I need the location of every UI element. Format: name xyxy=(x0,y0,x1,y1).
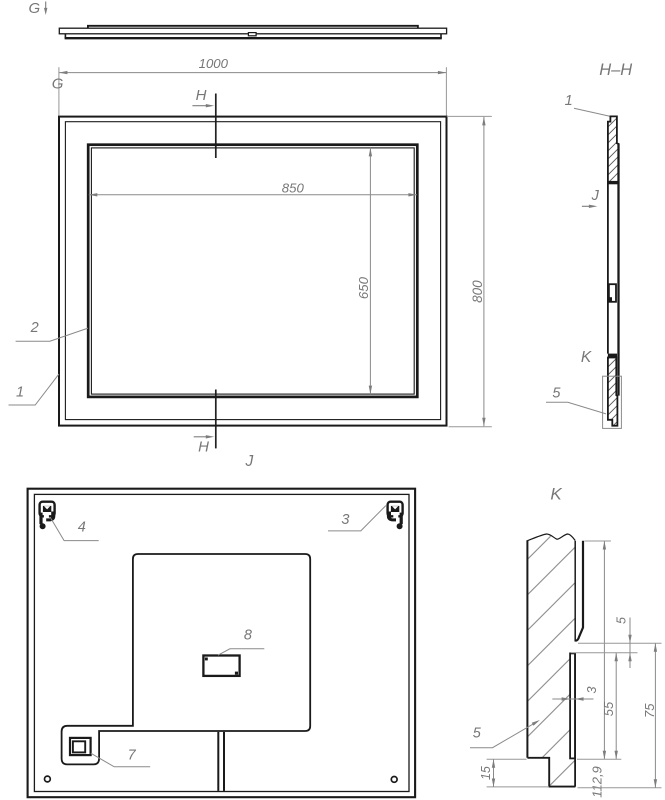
svg-text:5: 5 xyxy=(615,617,629,624)
svg-text:H–H: H–H xyxy=(599,61,632,79)
svg-text:112,9: 112,9 xyxy=(590,766,605,798)
svg-text:H: H xyxy=(198,439,209,456)
svg-text:H: H xyxy=(196,87,207,104)
svg-text:5: 5 xyxy=(473,726,482,742)
svg-text:8: 8 xyxy=(244,628,252,644)
svg-text:G: G xyxy=(52,75,64,92)
svg-text:4: 4 xyxy=(78,519,86,535)
svg-text:3: 3 xyxy=(585,686,599,693)
svg-text:2: 2 xyxy=(30,320,39,336)
svg-text:5: 5 xyxy=(552,385,561,401)
svg-text:800: 800 xyxy=(470,280,485,303)
svg-text:55: 55 xyxy=(601,701,616,716)
svg-text:1: 1 xyxy=(565,93,573,109)
svg-text:K: K xyxy=(581,349,592,366)
svg-text:K: K xyxy=(550,485,562,504)
svg-text:1: 1 xyxy=(16,384,24,400)
svg-text:J: J xyxy=(245,453,254,470)
svg-text:75: 75 xyxy=(642,703,657,718)
svg-text:850: 850 xyxy=(282,181,305,196)
svg-text:1000: 1000 xyxy=(199,56,229,71)
svg-text:650: 650 xyxy=(356,276,371,299)
svg-text:3: 3 xyxy=(341,512,349,528)
svg-text:7: 7 xyxy=(128,747,137,763)
svg-text:G: G xyxy=(28,0,40,17)
svg-text:J: J xyxy=(591,188,600,204)
svg-text:15: 15 xyxy=(479,766,493,780)
